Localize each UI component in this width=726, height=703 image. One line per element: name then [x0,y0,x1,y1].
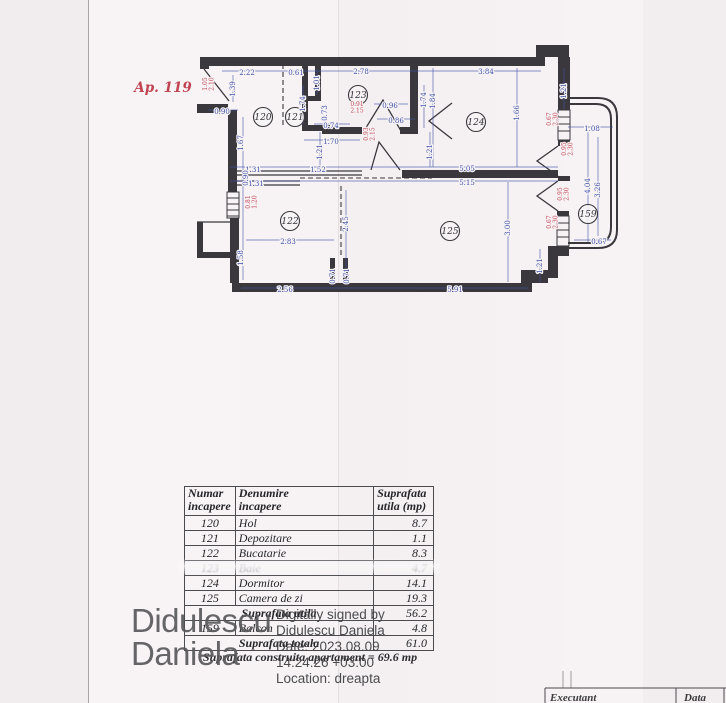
table-row: 123 Baie 4.7 [185,561,434,576]
dimension-label: 0.86 [388,117,404,125]
room-number-label: 159 [579,210,596,220]
dimension-label: 0.67 [591,238,607,246]
signature-big-name: Didulescu Daniela [131,604,271,670]
dimension-label: 1.66 [513,105,521,121]
room-name: Depozitare [235,531,373,546]
dimension-label: 0.71 [343,268,351,284]
dimension-label: 0.90 [242,170,250,186]
signature-big-line2: Daniela [131,637,271,670]
room-number-label: 122 [281,217,298,227]
room-number-label: 124 [467,118,484,128]
room-area: 19.3 [374,591,434,606]
dimension-label: 1.58 [237,250,245,266]
dimension-label: 2.45 [342,216,350,232]
room-area: 1.1 [374,531,434,546]
dimension-label: 2.83 [280,238,296,246]
header-suprafata: Suprafata utila (mp) [374,487,434,516]
apartment-label: Ap. 119 [132,80,192,96]
dimension-label: 1.21 [316,144,324,160]
data-label: Data [683,692,707,703]
dimension-label: 1.84 [429,93,437,109]
dimension-label: 0.90 [214,108,230,116]
dimension-label: 0.74 [323,122,339,130]
dimension-label: 1.67 [237,135,245,151]
executant-label: Executant [549,692,597,703]
room-number-label: 120 [254,113,271,123]
dimension-label: 1.52 [310,166,326,174]
door-window-dimension-label: 0.952.30 [557,187,571,201]
room-number-label: 123 [349,91,366,101]
room-area: 4.7 [374,561,434,576]
dimension-label: 0.61 [288,69,304,77]
dimension-label: 5.91 [447,286,463,294]
signature-detail-line: Location: dreapta [276,671,385,687]
room-name: Hol [235,516,373,531]
dimension-label: 1.39 [229,81,237,97]
header-numar: Numar incapere [185,487,236,516]
dimension-label: 1.74 [299,96,307,112]
dimension-label: 1.31 [248,180,264,188]
table-header-row: Numar incapere Denumire incapere Suprafa… [185,487,434,516]
table-row: 124 Dormitor 14.1 [185,576,434,591]
room-number-label: 121 [286,113,303,123]
door-window-dimension-label: 0.811.20 [245,195,259,209]
scanned-document-page: Ap. 119 1201211231241221251592.220.612.7… [0,0,726,703]
dimension-label: 1.74 [420,92,428,108]
signature-detail-line: Date: 2023.08.09 [276,639,385,655]
room-number: 124 [185,576,236,591]
dimension-label: 1.21 [426,144,434,160]
dimension-label: 1.08 [584,125,600,133]
room-name: Baie [235,561,373,576]
room-number: 123 [185,561,236,576]
room-area: 8.7 [374,516,434,531]
room-area: 8.3 [374,546,434,561]
door-window-dimension-label: 0.912.15 [350,101,364,115]
dimension-label: 2.22 [239,69,255,77]
dimension-label: 1.01 [313,75,321,91]
dimension-label: 2.78 [353,68,369,76]
dimension-label: 4.04 [584,178,592,194]
header-denumire: Denumire incapere [235,487,373,516]
table-row: 120 Hol 8.7 [185,516,434,531]
room-name: Dormitor [235,576,373,591]
dimension-label: 1.21 [536,258,544,274]
door-window-dimension-label: 0.672.30 [546,215,560,229]
table-row: 122 Bucatarie 8.3 [185,546,434,561]
dimension-label: 0.73 [321,105,329,121]
signature-details: Digitally signed by Didulescu Daniela Da… [276,607,385,687]
room-name: Bucatarie [235,546,373,561]
dimension-label: 3.26 [594,182,602,198]
title-block-strip: Executant Data [545,671,726,703]
table-row: 121 Depozitare 1.1 [185,531,434,546]
room-number: 120 [185,516,236,531]
room-area: 14.1 [374,576,434,591]
dimension-label: 5.05 [459,165,475,173]
room-number-label: 125 [441,227,458,237]
signature-detail-line: 14:24:26 +03:00 [276,655,385,671]
dimension-label: 0.71 [329,268,337,284]
door-window-dimension-label: 1.052.10 [202,77,216,91]
signature-big-line1: Didulescu [131,604,271,637]
door-window-dimension-label: 0.932.15 [363,127,377,141]
room-number: 121 [185,531,236,546]
dimension-label: 3.00 [504,220,512,236]
dimension-label: 2.56 [277,286,293,294]
signature-detail-line: Didulescu Daniela [276,623,385,639]
dimension-label: 1.21 [560,83,568,99]
dimension-label: 3.84 [478,68,494,76]
dimension-label: 1.70 [323,138,339,146]
room-number: 122 [185,546,236,561]
door-window-dimension-label: 0.952.30 [561,142,575,156]
dimension-label: 0.96 [382,102,398,110]
door-window-dimension-label: 0.672.30 [546,112,560,126]
signature-detail-line: Digitally signed by [276,607,385,623]
dimension-label: 5.15 [459,179,475,187]
